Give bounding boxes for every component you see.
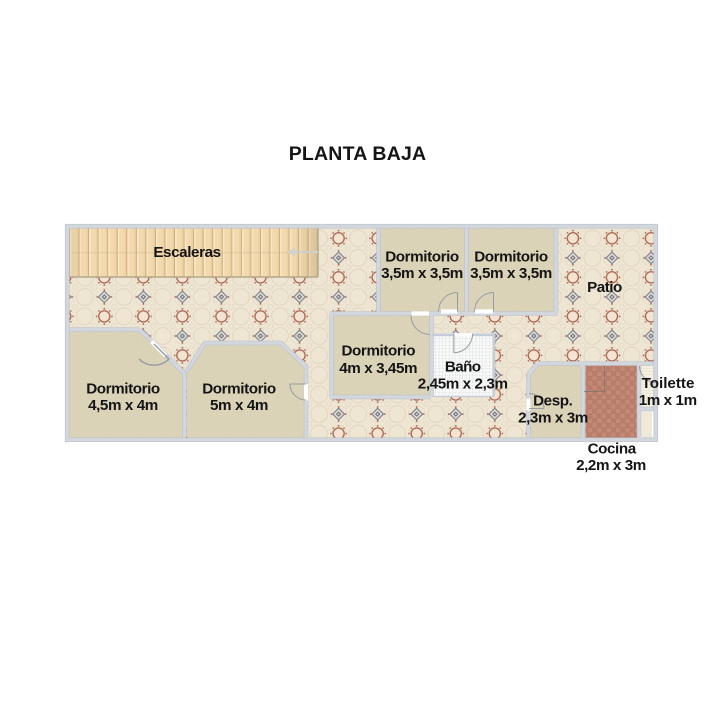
svg-text:2,3m x 3m: 2,3m x 3m xyxy=(518,409,588,426)
svg-text:5m x 4m: 5m x 4m xyxy=(210,397,268,414)
svg-text:Dormitorio: Dormitorio xyxy=(341,342,415,359)
svg-text:1m x 1m: 1m x 1m xyxy=(639,392,697,409)
svg-text:Dormitorio: Dormitorio xyxy=(202,380,276,397)
svg-text:2,45m x 2,3m: 2,45m x 2,3m xyxy=(418,376,508,393)
svg-text:3,5m x 3,5m: 3,5m x 3,5m xyxy=(470,265,552,282)
svg-text:Escaleras: Escaleras xyxy=(153,244,220,261)
svg-text:Dormitorio: Dormitorio xyxy=(474,249,548,266)
svg-text:Baño: Baño xyxy=(445,358,481,375)
svg-text:Desp.: Desp. xyxy=(533,393,573,410)
svg-text:Dormitorio: Dormitorio xyxy=(385,249,459,266)
svg-text:4,5m x 4m: 4,5m x 4m xyxy=(88,397,158,414)
svg-text:3,5m x 3,5m: 3,5m x 3,5m xyxy=(381,265,463,282)
svg-text:2,2m x 3m: 2,2m x 3m xyxy=(576,457,646,474)
svg-text:4m x 3,45m: 4m x 3,45m xyxy=(339,360,417,377)
svg-text:Patio: Patio xyxy=(587,279,622,296)
svg-text:Cocina: Cocina xyxy=(588,440,637,457)
svg-text:Toilette: Toilette xyxy=(642,375,695,392)
svg-text:Dormitorio: Dormitorio xyxy=(86,380,160,397)
svg-text:PLANTA BAJA: PLANTA BAJA xyxy=(289,143,427,165)
